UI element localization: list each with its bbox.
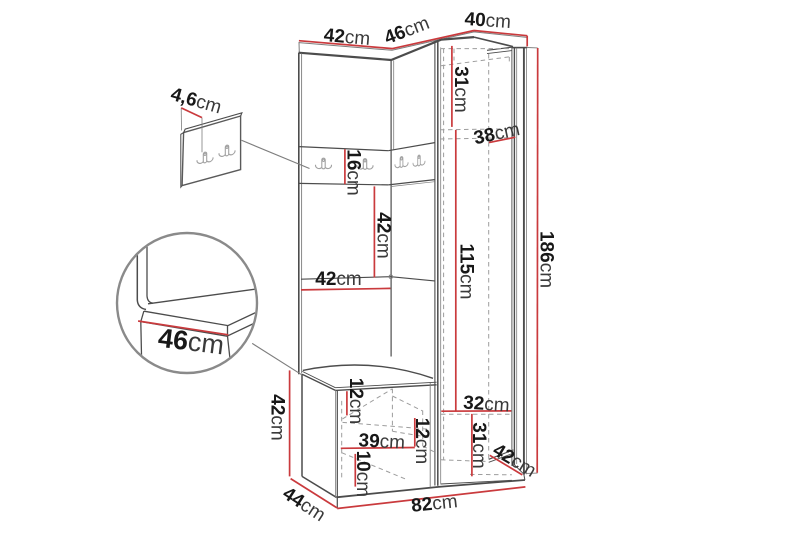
svg-text:42cm: 42cm (267, 394, 288, 440)
svg-text:40cm: 40cm (464, 9, 512, 33)
svg-text:32cm: 32cm (462, 392, 510, 416)
svg-text:31cm: 31cm (450, 66, 471, 112)
svg-text:186cm: 186cm (536, 231, 557, 288)
svg-text:42cm: 42cm (315, 269, 361, 290)
svg-text:12cm: 12cm (411, 418, 432, 464)
svg-text:10cm: 10cm (352, 451, 373, 497)
svg-text:115cm: 115cm (455, 244, 476, 300)
svg-text:12cm: 12cm (345, 378, 366, 424)
svg-text:42cm: 42cm (323, 25, 371, 50)
svg-text:42cm: 42cm (372, 212, 393, 258)
svg-text:16cm: 16cm (342, 149, 363, 195)
svg-text:31cm: 31cm (468, 422, 489, 468)
